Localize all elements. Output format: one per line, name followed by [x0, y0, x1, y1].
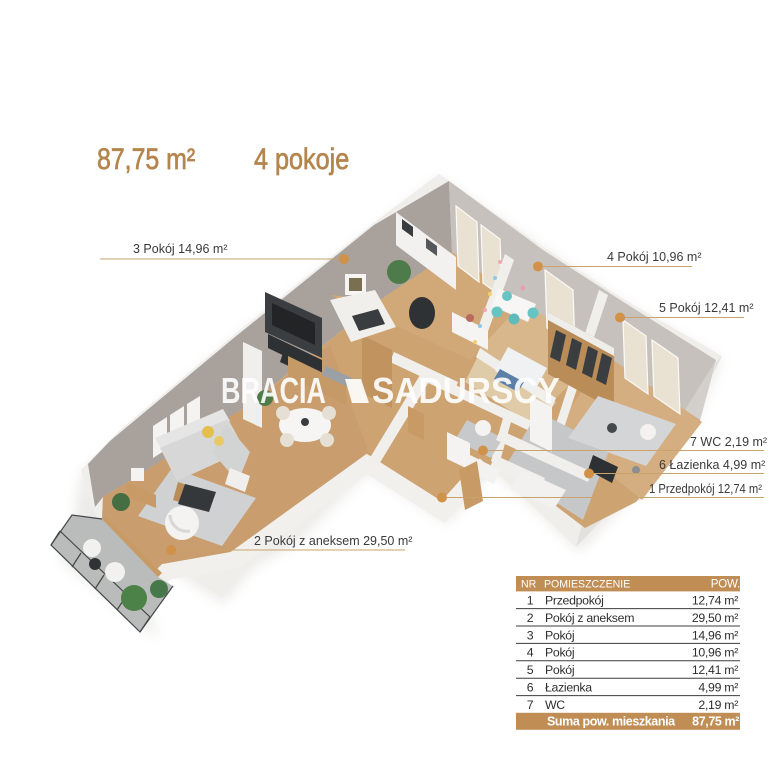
- svg-text:BRACIA: BRACIA: [221, 370, 326, 411]
- svg-text:2,19 m²: 2,19 m²: [698, 698, 738, 712]
- svg-text:10,96 m²: 10,96 m²: [692, 646, 738, 660]
- svg-text:Łazienka: Łazienka: [545, 681, 592, 695]
- svg-text:WC: WC: [545, 698, 565, 712]
- svg-text:1 Przedpokój 12,74 m²: 1 Przedpokój 12,74 m²: [649, 481, 762, 496]
- svg-text:NR: NR: [521, 578, 536, 590]
- svg-text:Pokój z aneksem: Pokój z aneksem: [545, 611, 634, 625]
- svg-text:POMIESZCZENIE: POMIESZCZENIE: [544, 578, 630, 590]
- svg-text:3: 3: [527, 628, 534, 642]
- svg-text:2 Pokój z aneksem 29,50 m²: 2 Pokój z aneksem 29,50 m²: [254, 534, 412, 548]
- svg-text:Pokój: Pokój: [545, 663, 574, 677]
- svg-text:29,50 m²: 29,50 m²: [692, 611, 738, 625]
- svg-text:7 WC 2,19 m²: 7 WC 2,19 m²: [690, 435, 767, 449]
- svg-text:87,75 m²: 87,75 m²: [692, 715, 739, 729]
- svg-text:Pokój: Pokój: [545, 646, 574, 660]
- svg-text:7: 7: [527, 698, 534, 712]
- svg-text:1: 1: [527, 594, 534, 608]
- svg-text:4,99 m²: 4,99 m²: [698, 681, 738, 695]
- svg-text:4: 4: [527, 646, 534, 660]
- svg-text:12,74 m²: 12,74 m²: [692, 594, 738, 608]
- svg-text:POW.: POW.: [711, 579, 740, 591]
- svg-text:2: 2: [527, 611, 534, 625]
- svg-text:6 Łazienka 4,99 m²: 6 Łazienka 4,99 m²: [659, 458, 765, 472]
- svg-text:4 Pokój 10,96 m²: 4 Pokój 10,96 m²: [607, 250, 702, 264]
- svg-text:87,75 m²: 87,75 m²: [97, 142, 195, 176]
- svg-text:3 Pokój 14,96 m²: 3 Pokój 14,96 m²: [133, 242, 228, 256]
- svg-text:Pokój: Pokój: [545, 628, 574, 642]
- svg-text:Suma pow. mieszkania: Suma pow. mieszkania: [547, 715, 676, 729]
- svg-text:Przedpokój: Przedpokój: [545, 594, 604, 608]
- svg-text:5 Pokój 12,41 m²: 5 Pokój 12,41 m²: [659, 301, 754, 315]
- svg-text:SADURSCY: SADURSCY: [372, 372, 560, 411]
- svg-text:5: 5: [527, 663, 534, 677]
- svg-text:6: 6: [527, 681, 534, 695]
- svg-text:14,96 m²: 14,96 m²: [692, 628, 738, 642]
- svg-text:12,41 m²: 12,41 m²: [692, 663, 738, 677]
- svg-text:4 pokoje: 4 pokoje: [254, 142, 349, 176]
